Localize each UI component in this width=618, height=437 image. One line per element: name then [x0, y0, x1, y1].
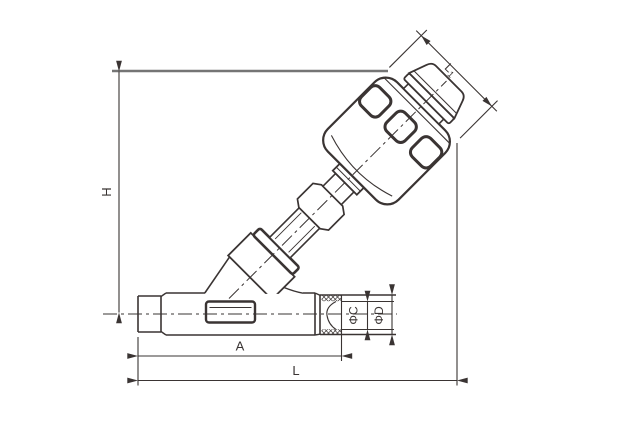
- section-break-curve: [327, 302, 336, 330]
- dim-label-L: L: [292, 363, 299, 378]
- angle-seat-valve-drawing: L1 H A L: [0, 0, 618, 437]
- dim-label-A: A: [236, 339, 245, 354]
- thread-hatch-bottom: [322, 329, 342, 335]
- thread-hatch-top: [322, 296, 342, 302]
- neck-body-fillet: [284, 288, 303, 294]
- neck-cone-edge: [199, 257, 235, 293]
- dim-phiC: ΦC: [347, 302, 368, 330]
- dim-label-H: H: [99, 187, 114, 196]
- dim-phiD: ΦD: [372, 295, 392, 335]
- dim-label-phiD: ΦD: [372, 306, 386, 325]
- dim-label-phiC: ΦC: [347, 306, 361, 325]
- technical-drawing-canvas: L1 H A L: [0, 0, 618, 437]
- dim-A: A: [138, 337, 342, 386]
- nameplate: [206, 302, 255, 323]
